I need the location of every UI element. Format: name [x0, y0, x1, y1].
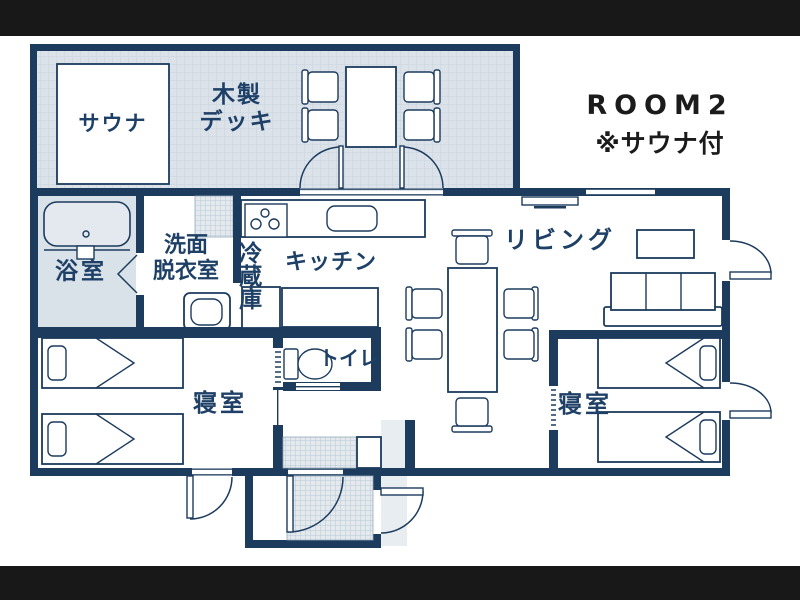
dining-chair	[406, 287, 442, 320]
bed	[598, 338, 720, 388]
bed	[598, 412, 720, 462]
room-title: ROOM2	[570, 90, 750, 121]
outdoor-chair	[404, 70, 440, 104]
bed	[42, 414, 183, 464]
bedroom-left-sliding-door	[277, 390, 278, 425]
label-deck-line2: デッキ	[200, 108, 275, 135]
interior-wall-horizontal	[30, 327, 381, 338]
label-living: リビング	[504, 226, 616, 254]
washroom-storage-hatch	[195, 196, 233, 237]
closet-folding-door	[275, 352, 281, 382]
label-bedroom-right: 寝室	[558, 390, 612, 418]
bed	[42, 338, 183, 388]
dining-chair	[504, 287, 538, 320]
label-kitchen: キッチン	[285, 250, 377, 276]
label-bath: 浴室	[55, 257, 107, 284]
tv-board	[637, 230, 694, 258]
dining-chair	[406, 328, 442, 361]
window-top-wall	[586, 188, 655, 196]
washing-machine	[184, 293, 230, 330]
bathtub	[44, 202, 130, 259]
label-washroom: 洗面 脱衣室	[153, 233, 219, 285]
outdoor-chair	[404, 108, 440, 142]
wall-tv	[522, 197, 578, 209]
kitchen-island-counter	[282, 288, 378, 327]
dining-chair	[504, 328, 538, 361]
outdoor-chair	[302, 108, 338, 142]
floorplan-page: ROOM2 ※サウナ付 サウナ 木製 デッキ 浴室 洗面 脱衣室 冷蔵庫 キッチ…	[0, 0, 800, 600]
label-deck-line1: 木製	[200, 81, 275, 108]
living-exterior-door	[730, 241, 771, 279]
label-washroom-line1: 洗面	[153, 233, 219, 259]
dining-table	[448, 268, 497, 392]
kitchen-sink	[327, 206, 377, 231]
bedroom-right-exterior-door	[730, 383, 771, 418]
label-washroom-line2: 脱衣室	[153, 259, 219, 285]
label-fridge: 冷蔵庫	[234, 241, 261, 310]
stove	[245, 204, 287, 237]
dining-chair	[452, 398, 492, 432]
label-sauna: サウナ	[79, 112, 148, 137]
label-deck: 木製 デッキ	[200, 81, 275, 135]
outdoor-chair	[302, 70, 338, 104]
bedroom-left-terrace-door	[187, 469, 232, 520]
room-subtitle: ※サウナ付	[570, 124, 750, 160]
plan-title-block: ROOM2 ※サウナ付	[570, 90, 750, 160]
outdoor-table	[346, 67, 396, 147]
label-toilet: トイレ	[319, 347, 379, 371]
label-bedroom-left: 寝室	[193, 389, 247, 417]
sofa	[604, 273, 722, 326]
shoe-cabinet	[357, 437, 381, 468]
dining-chair	[452, 230, 492, 264]
genkan-hatch-inner	[283, 437, 357, 468]
